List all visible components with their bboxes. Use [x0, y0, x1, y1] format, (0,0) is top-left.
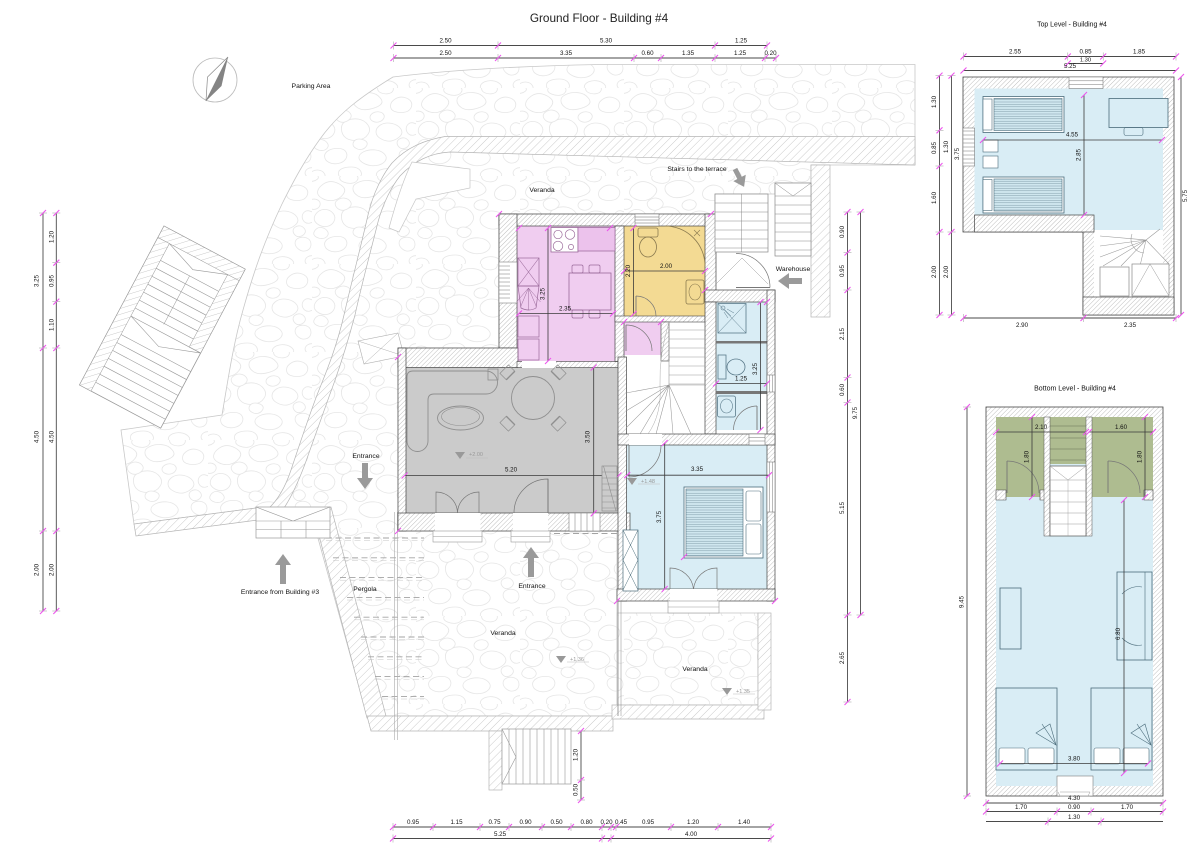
svg-text:3.35: 3.35: [691, 466, 704, 473]
svg-text:Bottom Level - Building #4: Bottom Level - Building #4: [1034, 386, 1116, 393]
svg-text:1.80: 1.80: [1137, 450, 1144, 463]
svg-text:1.30: 1.30: [931, 95, 938, 108]
svg-text:0.90: 0.90: [519, 819, 532, 826]
svg-text:2.50: 2.50: [439, 38, 452, 45]
svg-text:2.35: 2.35: [559, 306, 572, 313]
svg-text:0.80: 0.80: [580, 819, 593, 826]
svg-text:Veranda: Veranda: [682, 666, 708, 673]
svg-text:1.15: 1.15: [450, 819, 463, 826]
svg-text:5.20: 5.20: [505, 467, 518, 474]
svg-text:0.60: 0.60: [839, 383, 846, 396]
svg-text:2.00: 2.00: [34, 563, 41, 576]
svg-text:Stairs to the terrace: Stairs to the terrace: [667, 166, 727, 173]
svg-text:Veranda: Veranda: [529, 187, 555, 194]
svg-text:0.45: 0.45: [615, 819, 628, 826]
svg-text:1.60: 1.60: [1115, 424, 1128, 431]
svg-text:3.25: 3.25: [34, 274, 41, 287]
svg-text:2.50: 2.50: [439, 50, 452, 57]
svg-text:0.60: 0.60: [641, 50, 654, 57]
svg-text:5.25: 5.25: [1064, 63, 1077, 70]
svg-text:0.95: 0.95: [642, 819, 655, 826]
svg-text:2.00: 2.00: [48, 563, 55, 576]
svg-text:3.50: 3.50: [585, 430, 592, 443]
svg-text:1.20: 1.20: [687, 819, 700, 826]
svg-text:2.35: 2.35: [1124, 322, 1137, 329]
svg-text:0.75: 0.75: [488, 819, 501, 826]
svg-text:5.25: 5.25: [494, 831, 507, 838]
svg-text:1.40: 1.40: [738, 819, 751, 826]
svg-text:2.00: 2.00: [943, 265, 950, 278]
svg-text:0.85: 0.85: [931, 141, 938, 154]
svg-text:4.30: 4.30: [1068, 795, 1081, 802]
svg-text:0.85: 0.85: [1079, 49, 1092, 56]
svg-text:Ground Floor - Building #4: Ground Floor - Building #4: [530, 11, 669, 25]
svg-text:2.10: 2.10: [1035, 424, 1048, 431]
svg-text:9.45: 9.45: [959, 595, 966, 608]
svg-text:+2.00: +2.00: [469, 452, 483, 458]
svg-text:0.95: 0.95: [48, 274, 55, 287]
svg-text:3.35: 3.35: [560, 50, 573, 57]
svg-text:1.35: 1.35: [682, 50, 695, 57]
svg-text:1.10: 1.10: [48, 318, 55, 331]
svg-text:2.00: 2.00: [931, 265, 938, 278]
svg-text:1.25: 1.25: [735, 376, 748, 383]
svg-text:5.15: 5.15: [839, 501, 846, 514]
svg-text:1.30: 1.30: [1068, 814, 1081, 821]
svg-text:1.70: 1.70: [1121, 804, 1134, 811]
svg-text:1.80: 1.80: [1024, 450, 1031, 463]
svg-text:4.55: 4.55: [1066, 132, 1079, 139]
svg-text:1.60: 1.60: [931, 191, 938, 204]
svg-text:Top Level - Building #4: Top Level - Building #4: [1037, 22, 1107, 29]
svg-text:Warehouse: Warehouse: [776, 266, 811, 273]
svg-text:1.30: 1.30: [1080, 58, 1091, 64]
svg-text:2.15: 2.15: [839, 327, 846, 340]
svg-text:Veranda: Veranda: [490, 630, 516, 637]
svg-text:0.95: 0.95: [839, 264, 846, 277]
svg-text:Parking Area: Parking Area: [292, 83, 331, 90]
svg-text:Entrance from Building #3: Entrance from Building #3: [241, 589, 319, 596]
svg-text:1.25: 1.25: [735, 38, 748, 45]
svg-text:+1.36: +1.36: [570, 657, 584, 663]
svg-text:9.75: 9.75: [852, 406, 859, 419]
svg-text:5.30: 5.30: [600, 38, 613, 45]
svg-text:Pergola: Pergola: [353, 586, 377, 593]
svg-text:0.90: 0.90: [839, 225, 846, 238]
svg-text:1.25: 1.25: [734, 50, 747, 57]
svg-text:0.20: 0.20: [764, 50, 777, 57]
svg-text:0.20: 0.20: [600, 819, 613, 826]
svg-text:1.20: 1.20: [48, 230, 55, 243]
svg-text:2.90: 2.90: [1016, 322, 1029, 329]
svg-text:4.50: 4.50: [48, 430, 55, 443]
svg-text:3.25: 3.25: [540, 287, 547, 300]
svg-text:0.90: 0.90: [1068, 804, 1081, 811]
svg-text:4.50: 4.50: [34, 430, 41, 443]
svg-text:6.80: 6.80: [1115, 627, 1122, 640]
svg-text:1.20: 1.20: [573, 748, 580, 761]
svg-text:3.80: 3.80: [1068, 756, 1081, 763]
svg-text:3.75: 3.75: [656, 510, 663, 523]
svg-text:2.00: 2.00: [660, 263, 673, 270]
svg-text:Entrance: Entrance: [518, 583, 545, 590]
svg-text:3.25: 3.25: [752, 362, 759, 375]
svg-text:0.95: 0.95: [407, 819, 420, 826]
svg-text:1.70: 1.70: [1015, 804, 1028, 811]
svg-text:2.55: 2.55: [1009, 49, 1022, 56]
svg-text:3.75: 3.75: [954, 147, 961, 160]
svg-text:4.00: 4.00: [685, 831, 698, 838]
svg-text:0.50: 0.50: [550, 819, 563, 826]
svg-text:1.85: 1.85: [1133, 49, 1146, 56]
svg-text:2.85: 2.85: [1076, 148, 1083, 161]
svg-text:0.50: 0.50: [573, 783, 580, 796]
svg-text:+1.35: +1.35: [736, 689, 750, 695]
svg-text:+1.48: +1.48: [641, 479, 655, 485]
svg-text:5.75: 5.75: [1182, 189, 1189, 202]
svg-text:2.20: 2.20: [625, 264, 632, 277]
svg-text:2.65: 2.65: [839, 651, 846, 664]
svg-text:1.30: 1.30: [943, 140, 950, 153]
svg-text:Entrance: Entrance: [352, 453, 379, 460]
